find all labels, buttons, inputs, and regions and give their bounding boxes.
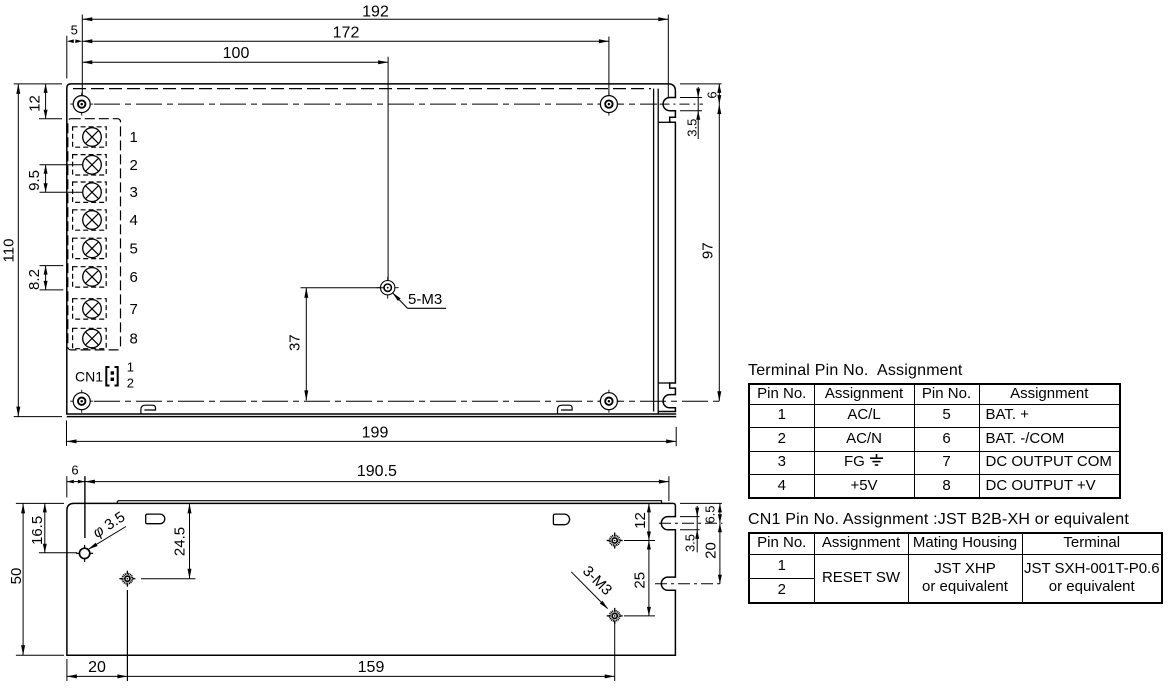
svg-text:37: 37 xyxy=(287,334,304,351)
svg-text:6.5: 6.5 xyxy=(703,505,718,523)
svg-text:12: 12 xyxy=(26,95,43,112)
svg-text:6: 6 xyxy=(71,462,78,477)
svg-text:3.5: 3.5 xyxy=(685,119,700,137)
svg-text:8: 8 xyxy=(130,331,138,348)
svg-text:7: 7 xyxy=(130,301,138,318)
svg-text:2: 2 xyxy=(130,157,138,174)
svg-text:6: 6 xyxy=(130,269,138,286)
svg-text:190.5: 190.5 xyxy=(357,463,397,480)
svg-text:97: 97 xyxy=(700,242,717,259)
svg-text:199: 199 xyxy=(362,425,389,442)
svg-text:5-M3: 5-M3 xyxy=(408,291,442,308)
svg-text:16.5: 16.5 xyxy=(29,516,46,545)
svg-text:2: 2 xyxy=(127,376,134,391)
svg-text:50: 50 xyxy=(8,568,25,585)
svg-text:6: 6 xyxy=(705,91,720,98)
svg-text:100: 100 xyxy=(223,45,250,62)
svg-text:172: 172 xyxy=(333,24,360,41)
svg-text:5: 5 xyxy=(130,240,138,257)
svg-text:20: 20 xyxy=(88,659,106,676)
svg-text:20: 20 xyxy=(703,542,720,559)
svg-text:24.5: 24.5 xyxy=(172,527,189,556)
svg-text:192: 192 xyxy=(362,4,389,21)
svg-text:3: 3 xyxy=(130,184,138,201)
svg-text:12: 12 xyxy=(632,512,649,529)
svg-text:9.5: 9.5 xyxy=(26,170,43,191)
svg-text:25: 25 xyxy=(632,572,649,589)
svg-text:1: 1 xyxy=(130,129,138,146)
svg-text:3-M3: 3-M3 xyxy=(579,563,615,599)
svg-text:5: 5 xyxy=(71,23,78,38)
svg-text:CN1: CN1 xyxy=(75,369,103,385)
svg-text:159: 159 xyxy=(358,659,385,676)
svg-text:4: 4 xyxy=(130,212,138,229)
svg-text:1: 1 xyxy=(127,360,134,375)
svg-text:3.5: 3.5 xyxy=(683,534,698,552)
svg-text:110: 110 xyxy=(0,239,17,263)
svg-text:8.2: 8.2 xyxy=(26,269,43,290)
